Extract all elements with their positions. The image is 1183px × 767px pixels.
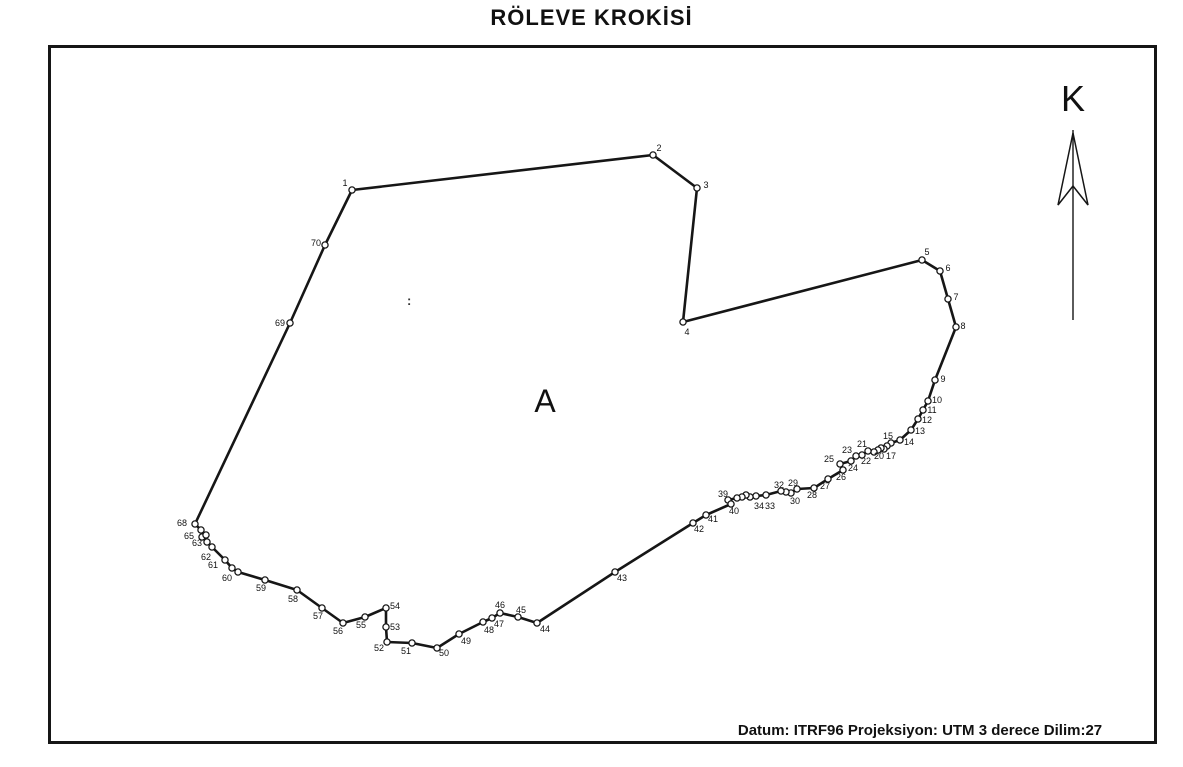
survey-sketch-canvas: 1234567891011121314151720212223242526272…: [0, 0, 1183, 767]
vertex-label: 45: [516, 605, 526, 615]
vertex-marker: [680, 319, 686, 325]
vertex-marker: [222, 557, 228, 563]
vertex-label: 5: [924, 247, 929, 257]
vertex-label: 34: [754, 501, 764, 511]
vertex-label: 62: [201, 552, 211, 562]
vertex-marker: [694, 185, 700, 191]
vertex-label: 46: [495, 600, 505, 610]
vertex-marker: [287, 320, 293, 326]
vertex-label: 23: [842, 445, 852, 455]
vertex-label: 9: [940, 374, 945, 384]
vertex-label: 65: [184, 531, 194, 541]
vertex-label: 54: [390, 601, 400, 611]
vertex-label: 24: [848, 463, 858, 473]
vertex-label: 3: [703, 180, 708, 190]
vertex-label: 7: [953, 292, 958, 302]
vertex-label: 10: [932, 395, 942, 405]
vertex-label: 55: [356, 620, 366, 630]
vertex-marker: [235, 569, 241, 575]
vertex-marker: [734, 495, 740, 501]
vertex-label: 58: [288, 594, 298, 604]
vertex-label: 8: [960, 321, 965, 331]
vertex-label: 52: [374, 643, 384, 653]
vertex-marker: [349, 187, 355, 193]
vertex-label: 70: [311, 238, 321, 248]
vertex-marker: [853, 453, 859, 459]
vertex-label: 29: [788, 478, 798, 488]
vertex-label: 40: [729, 506, 739, 516]
vertex-label: 1: [342, 178, 347, 188]
vertex-marker: [915, 416, 921, 422]
vertex-label: 28: [807, 490, 817, 500]
vertex-label: 30: [790, 496, 800, 506]
vertex-marker: [897, 437, 903, 443]
vertex-label: 26: [836, 472, 846, 482]
north-arrow-icon: [1058, 130, 1088, 320]
vertex-label: 50: [439, 648, 449, 658]
vertex-label: 44: [540, 624, 550, 634]
vertex-marker: [192, 521, 198, 527]
vertex-label: 20: [874, 451, 884, 461]
vertex-label: 68: [177, 518, 187, 528]
north-label: K: [1048, 78, 1098, 120]
vertex-marker: [497, 610, 503, 616]
vertex-label: 39: [718, 489, 728, 499]
vertex-marker: [383, 624, 389, 630]
vertex-label: 53: [390, 622, 400, 632]
vertex-label: 15: [883, 431, 893, 441]
vertex-label: 57: [313, 611, 323, 621]
datum-note: Datum: ITRF96 Projeksiyon: UTM 3 derece …: [700, 722, 1140, 739]
vertex-label: 27: [820, 481, 830, 491]
vertex-label: 21: [857, 439, 867, 449]
vertex-label: 6: [945, 263, 950, 273]
vertex-marker: [753, 493, 759, 499]
vertex-marker: [209, 544, 215, 550]
vertex-label: 25: [824, 454, 834, 464]
parcel-area-label: A: [515, 383, 575, 420]
parcel-boundary: [195, 155, 956, 648]
vertex-label: 22: [861, 456, 871, 466]
vertex-label: 12: [922, 415, 932, 425]
vertex-label: 47: [494, 619, 504, 629]
vertex-label: 59: [256, 583, 266, 593]
vertex-marker: [384, 639, 390, 645]
vertex-marker: [294, 587, 300, 593]
vertex-label: 32: [774, 480, 784, 490]
vertex-marker: [198, 527, 204, 533]
vertex-label: 56: [333, 626, 343, 636]
vertex-label: 17: [886, 451, 896, 461]
vertex-label: 33: [765, 501, 775, 511]
parcel-boundary-path: [195, 155, 956, 648]
vertex-marker: [204, 539, 210, 545]
vertex-marker: [763, 492, 769, 498]
vertex-marker: [650, 152, 656, 158]
vertex-label: 13: [915, 426, 925, 436]
vertex-label: 48: [484, 625, 494, 635]
vertex-marker: [932, 377, 938, 383]
vertex-label: 69: [275, 318, 285, 328]
vertex-marker: [908, 427, 914, 433]
vertex-label: 41: [708, 514, 718, 524]
vertex-label: 11: [927, 405, 936, 415]
vertex-marker: [203, 532, 209, 538]
vertex-label: 51: [401, 646, 411, 656]
vertex-markers: [192, 152, 959, 651]
vertex-label: 4: [684, 327, 689, 337]
vertex-marker: [383, 605, 389, 611]
vertex-marker: [937, 268, 943, 274]
vertex-marker: [920, 407, 926, 413]
vertex-label: 49: [461, 636, 471, 646]
vertex-marker: [925, 398, 931, 404]
vertex-label: 60: [222, 573, 232, 583]
scan-artifact: :: [407, 293, 411, 308]
vertex-label: 2: [656, 143, 661, 153]
vertex-marker: [945, 296, 951, 302]
vertex-label: 43: [617, 573, 627, 583]
vertex-marker: [837, 461, 843, 467]
vertex-marker: [229, 565, 235, 571]
vertex-label: 14: [904, 437, 914, 447]
vertex-marker: [953, 324, 959, 330]
vertex-label: 42: [694, 524, 704, 534]
vertex-marker: [919, 257, 925, 263]
vertex-marker: [322, 242, 328, 248]
